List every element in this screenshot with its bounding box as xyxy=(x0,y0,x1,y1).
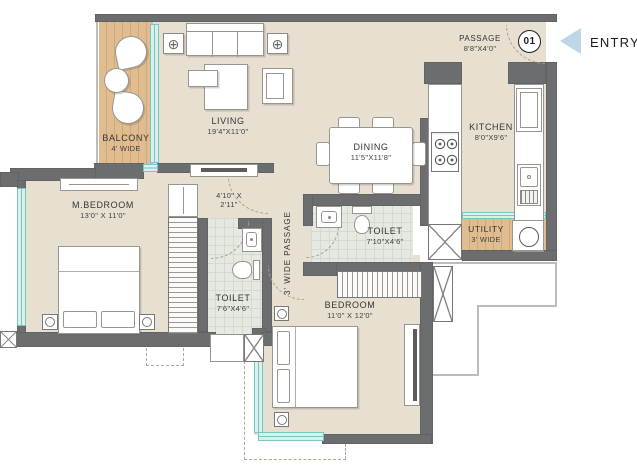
chajja-dashed-outline xyxy=(146,348,184,366)
chajja-dashed-line xyxy=(244,459,346,460)
basin-drain xyxy=(328,216,331,219)
door-number: 01 xyxy=(523,36,535,47)
bed-fold-line xyxy=(59,271,139,272)
kitchen-label: KITCHEN 8'0"X9'6" xyxy=(458,122,524,143)
wc-tank xyxy=(253,260,260,280)
washing-machine xyxy=(512,220,544,251)
tv xyxy=(201,168,247,172)
bed-fold-line xyxy=(295,327,296,407)
wardrobe-stripe xyxy=(413,329,417,401)
entry-label: ENTRY xyxy=(590,35,637,50)
wall-bedroom-bottom xyxy=(322,434,432,444)
wall-passage-kitchen xyxy=(424,62,462,84)
passage-label: PASSAGE 8'8"X4'0" xyxy=(448,34,512,53)
coffee-table-small xyxy=(188,70,218,87)
pillow xyxy=(63,311,97,328)
wc-bowl xyxy=(232,261,252,279)
balcony-table xyxy=(104,68,129,93)
side-table-plant: ⊕ xyxy=(163,33,184,54)
window-mbed-top xyxy=(143,164,158,172)
common-toilet-label: TOILET 7'10"X4'6" xyxy=(352,226,418,247)
sofa-divider xyxy=(237,31,238,57)
terrace-edge-line xyxy=(433,262,557,264)
wc-tank xyxy=(352,206,372,214)
wall-duct-box xyxy=(0,331,17,348)
terrace-edge-line xyxy=(477,305,557,307)
lobby-dims-label: 4'10" X 2'11" xyxy=(198,191,260,210)
basin-drain xyxy=(250,238,253,241)
entry-arrow-icon xyxy=(560,28,581,54)
kitchen-sink xyxy=(517,164,541,206)
bedroom-bed xyxy=(272,326,358,408)
wall-ctoilet-top xyxy=(303,194,422,206)
stove xyxy=(431,132,459,172)
wardrobe-divider xyxy=(183,187,184,214)
tv-unit xyxy=(190,164,258,177)
bedside-plant xyxy=(42,314,58,330)
bedside-plant xyxy=(274,306,289,321)
wall-ctoilet-left xyxy=(303,194,313,226)
bedroom-label: BEDROOM 11'0" X 12'0" xyxy=(305,300,395,321)
dining-chair xyxy=(412,142,426,166)
balcony-label: BALCONY 4' WIDE xyxy=(92,133,160,154)
living-label: LIVING 19'4"X11'0" xyxy=(192,116,264,137)
wall-mbed-bottom xyxy=(16,332,216,347)
kitchen-duct xyxy=(428,224,462,260)
master-bedroom-label: M.BEDROOM 13'0" X 11'0" xyxy=(58,200,148,221)
mbed-dresser xyxy=(60,178,138,191)
terrace-edge-line xyxy=(477,305,479,376)
duct-shaft xyxy=(433,266,453,322)
wall-top xyxy=(95,14,557,22)
bedroom-side-wardrobe xyxy=(404,324,420,406)
shaft-duct xyxy=(244,334,264,362)
sink-drainboard xyxy=(520,190,538,204)
sofa xyxy=(186,23,264,56)
side-table-plant: ⊕ xyxy=(267,33,288,54)
mbed-dresser-line xyxy=(69,184,129,185)
sofa-back-line xyxy=(187,31,263,32)
master-toilet-label: TOILET 7'6"X4'6" xyxy=(202,293,264,314)
terrace-edge-line xyxy=(433,374,479,376)
utility-label: UTILITY 3' WIDE xyxy=(460,224,512,244)
sofa-divider xyxy=(212,31,213,57)
dining-chair xyxy=(316,142,330,166)
wall-bedroom-top xyxy=(303,262,337,276)
pillow xyxy=(277,369,290,403)
floor-plan: ⊕ ⊕ xyxy=(0,0,637,470)
wall-right xyxy=(546,62,557,260)
sink-drain xyxy=(527,175,531,179)
bedside-plant xyxy=(139,314,155,330)
mbed-wardrobe-top xyxy=(168,184,198,217)
window-mbed-left xyxy=(17,188,26,326)
armchair xyxy=(262,68,293,104)
chajja-dashed-line xyxy=(345,444,346,459)
wall-under-balcony xyxy=(94,163,144,179)
window-bedroom-bottom xyxy=(258,432,324,441)
pillow xyxy=(277,331,290,365)
armchair-seat xyxy=(266,73,284,99)
ctoilet-basin xyxy=(316,206,342,228)
door-number-badge: 01 xyxy=(518,30,541,53)
mbed-wardrobe xyxy=(168,217,198,334)
master-bed xyxy=(58,246,140,334)
chajja-dashed-line xyxy=(244,346,245,460)
shaft-box xyxy=(210,334,244,362)
bedside-plant xyxy=(274,412,289,427)
bedroom-wardrobe xyxy=(337,271,422,298)
mtoilet-wc xyxy=(232,258,260,282)
terrace-edge-line xyxy=(555,262,557,307)
mtoilet-basin xyxy=(242,228,262,252)
pillow xyxy=(101,311,135,328)
wall-mtoilet-left xyxy=(198,218,208,332)
wide-passage-label: 3' WIDE PASSAGE xyxy=(283,185,292,295)
wall-passage-kitchen xyxy=(508,62,546,84)
dining-label: DINING 11'5"X11'8" xyxy=(335,142,407,163)
